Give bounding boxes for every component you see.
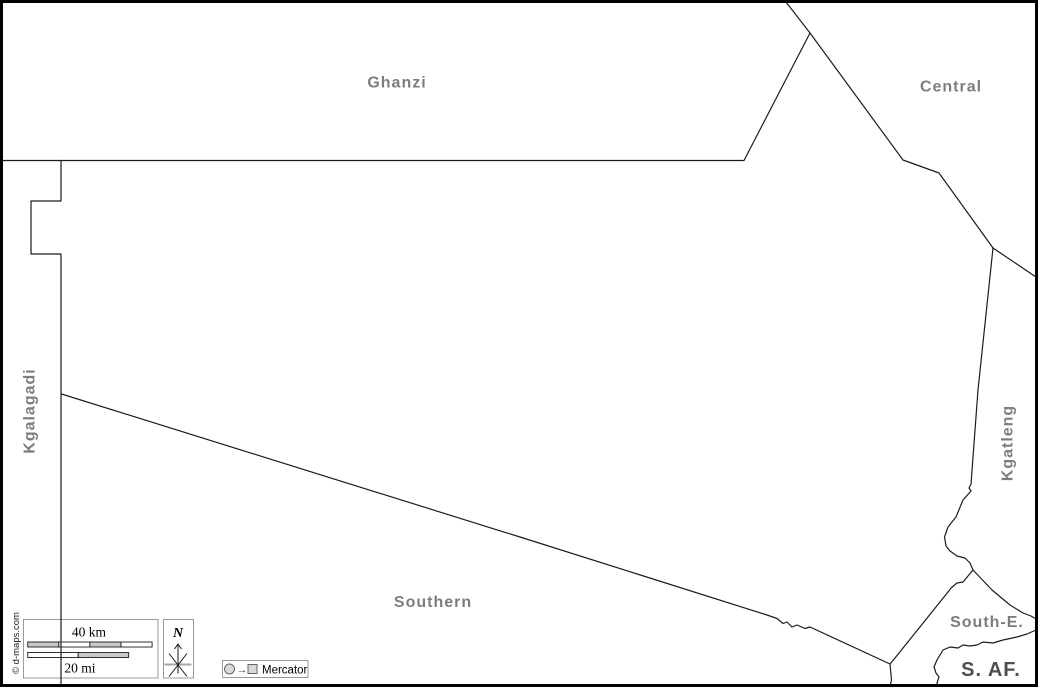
copyright-label: © d-maps.com [11, 612, 22, 674]
border-ghanzi-central [786, 2, 810, 33]
north-label: N [172, 626, 184, 641]
flat-map-square-icon [248, 665, 257, 674]
map-frame [2, 2, 1037, 686]
region-label-kgatleng: Kgatleng [1000, 405, 1017, 481]
scale-mi-label: 20 mi [64, 661, 95, 676]
projection-arrow-glyph: → [237, 664, 248, 676]
region-label-ghanzi: Ghanzi [367, 75, 426, 92]
projection-name-label: Mercator [262, 665, 308, 677]
scale-bar-mi [28, 653, 129, 658]
border-ghanzi-kweneng [744, 33, 810, 161]
map-canvas: → Ghanzi Central Kgalagadi Kgatleng Sout… [0, 0, 1040, 689]
border-central-kgatleng [993, 248, 1036, 277]
sphere-circle-icon [225, 664, 235, 674]
region-label-kgalagadi: Kgalagadi [22, 368, 39, 453]
country-label-south-africa: S. AF. [961, 659, 1021, 681]
border-kgatleng-southeast [973, 570, 1036, 619]
region-label-central: Central [920, 79, 982, 96]
border-kgatleng-kweneng [945, 248, 994, 570]
scale-bar-km [28, 642, 152, 647]
border-central-kweneng [810, 33, 993, 248]
region-label-southern: Southern [394, 594, 472, 611]
scale-km-label: 40 km [72, 625, 107, 640]
region-label-south-east: South-E. [950, 614, 1024, 631]
border-southeast-southern [890, 664, 892, 686]
map-page: { "map": { "region_labels": { "ghanzi": … [0, 0, 1040, 689]
